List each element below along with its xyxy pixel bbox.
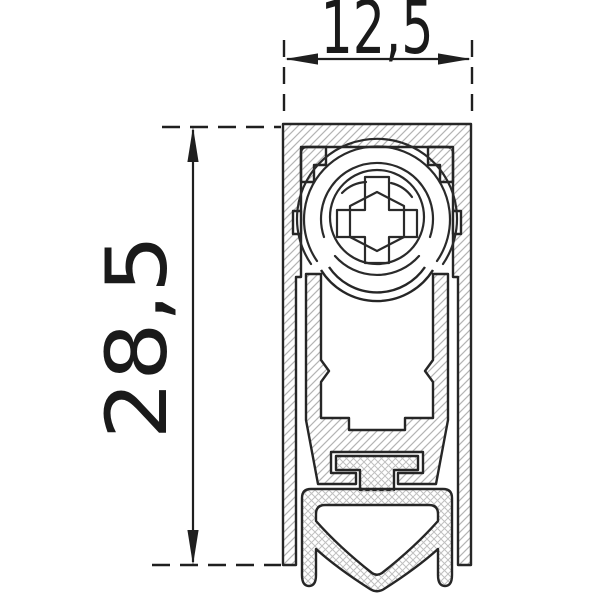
coil-arc-left [342, 182, 366, 193]
carrier-body [306, 274, 448, 484]
height-arrow-bottom-icon [187, 530, 198, 565]
hex-socket [350, 192, 404, 251]
cradle-arc-inner [329, 267, 425, 292]
height-dimension: 28,5 [88, 127, 281, 565]
height-arrow-top-icon [187, 127, 198, 162]
seal-gasket-body [302, 489, 452, 591]
width-arrow-right-icon [438, 53, 471, 64]
width-arrow-left-icon [285, 53, 318, 64]
width-dimension-label: 12,5 [321, 0, 434, 71]
coil-arc-right [391, 183, 412, 197]
spring-arc-bottom [335, 256, 419, 275]
height-dimension-label: 28,5 [88, 235, 186, 440]
technical-drawing-canvas: 12,5 28,5 [0, 0, 600, 600]
housing-tab-left [301, 147, 326, 182]
width-dimension: 12,5 [284, 0, 472, 121]
door-seal-cross-section-drawing: 12,5 28,5 [0, 0, 600, 600]
housing-tab-right [428, 147, 453, 182]
carrier-profile [306, 267, 448, 484]
